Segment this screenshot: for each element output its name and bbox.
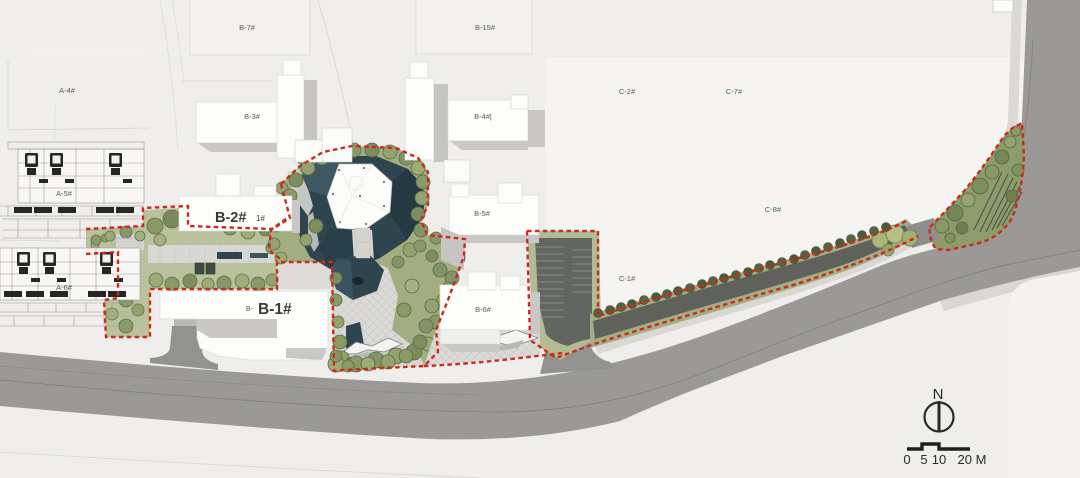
svg-text:B-3#: B-3# xyxy=(244,112,261,121)
svg-text:B-5#: B-5# xyxy=(474,209,491,218)
svg-text:A-6#: A-6# xyxy=(56,283,73,292)
svg-text:10: 10 xyxy=(932,452,946,467)
svg-text:B-4#|: B-4#| xyxy=(474,112,492,121)
svg-text:A-4#: A-4# xyxy=(59,86,76,95)
svg-text:B-7#: B-7# xyxy=(239,23,256,32)
svg-text:C-8#: C-8# xyxy=(765,205,782,214)
svg-text:C-1#: C-1# xyxy=(619,274,636,283)
svg-text:B-2#: B-2# xyxy=(215,210,246,226)
svg-text:20 M: 20 M xyxy=(958,452,987,467)
svg-text:C-2#: C-2# xyxy=(619,87,636,96)
svg-text:5: 5 xyxy=(920,452,927,467)
svg-text:B-: B- xyxy=(246,306,254,313)
svg-text:C-7#: C-7# xyxy=(726,87,743,96)
svg-text:N: N xyxy=(933,386,944,403)
svg-text:0: 0 xyxy=(903,452,910,467)
svg-text:A-5#: A-5# xyxy=(56,189,73,198)
svg-text:B-15#: B-15# xyxy=(475,23,496,32)
svg-text:B-1#: B-1# xyxy=(258,301,292,318)
svg-text:B-6#: B-6# xyxy=(475,305,492,314)
svg-text:1#: 1# xyxy=(256,214,265,223)
